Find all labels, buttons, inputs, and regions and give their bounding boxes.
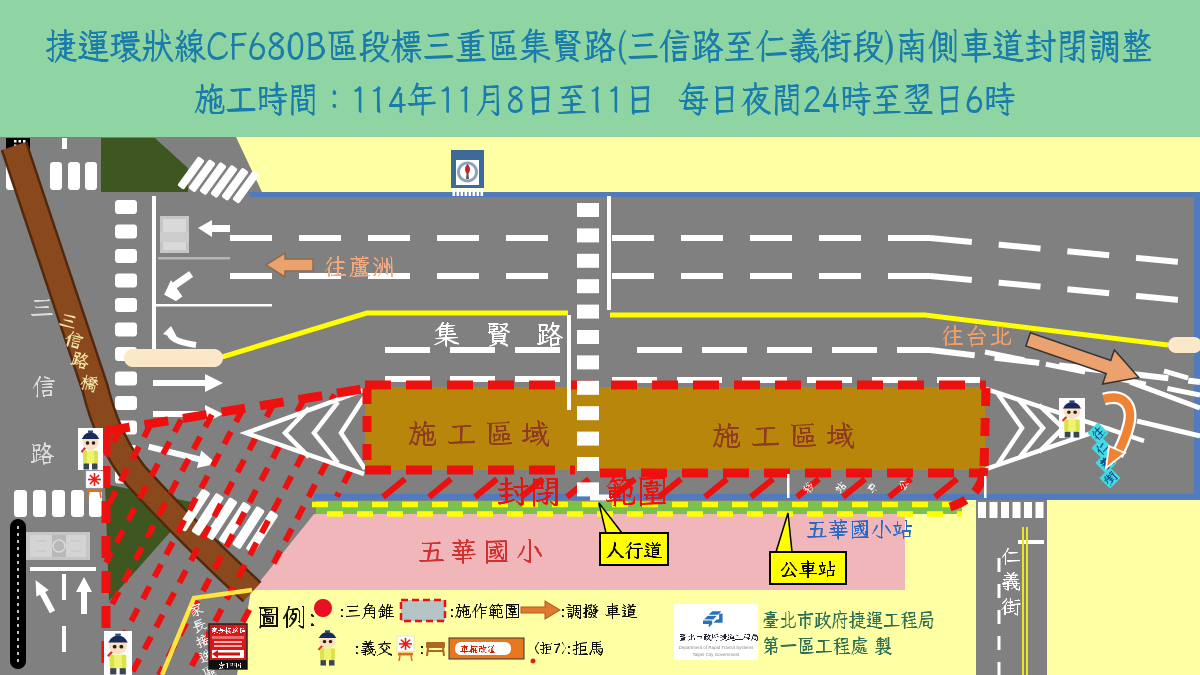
- svg-text:Department of Rapid Transit Sy: Department of Rapid Transit Systems: [679, 645, 755, 650]
- svg-text:Taipei City Government: Taipei City Government: [693, 652, 741, 657]
